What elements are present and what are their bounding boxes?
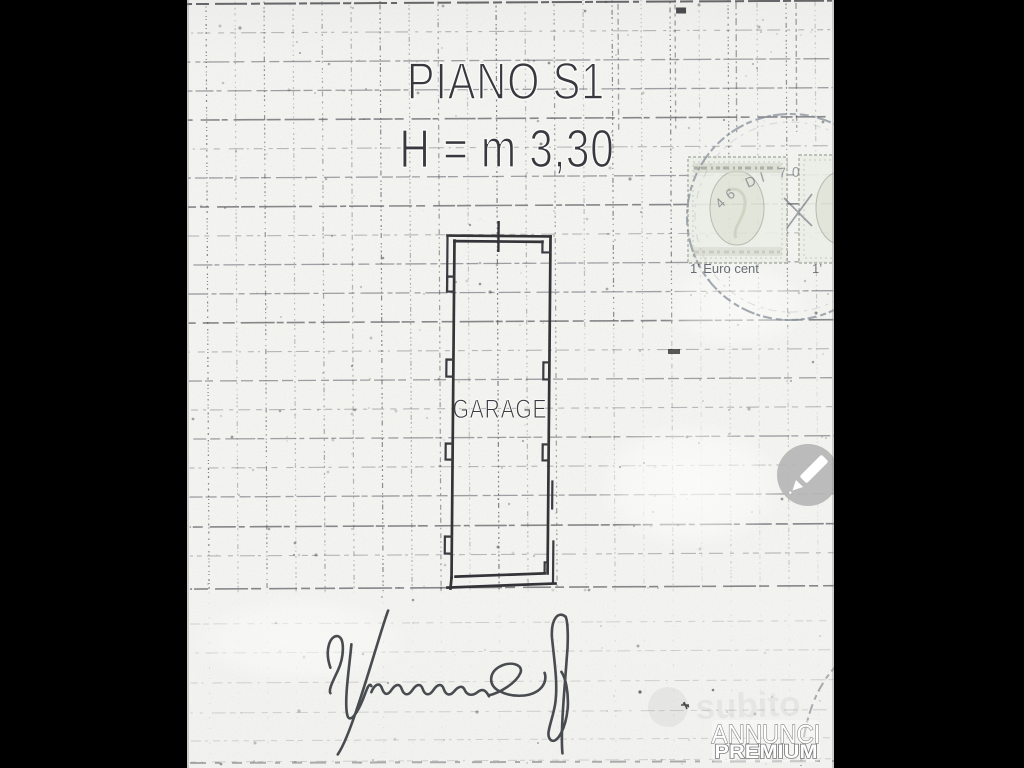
svg-text:PREMIUM: PREMIUM	[714, 741, 817, 762]
svg-text:1’ Euro cent: 1’ Euro cent	[690, 261, 759, 276]
svg-text:PIANO S1: PIANO S1	[407, 52, 605, 111]
svg-text:1’: 1’	[812, 261, 822, 276]
svg-text:H = m 3,30: H = m 3,30	[400, 119, 615, 179]
svg-text:GARAGE: GARAGE	[453, 395, 548, 425]
